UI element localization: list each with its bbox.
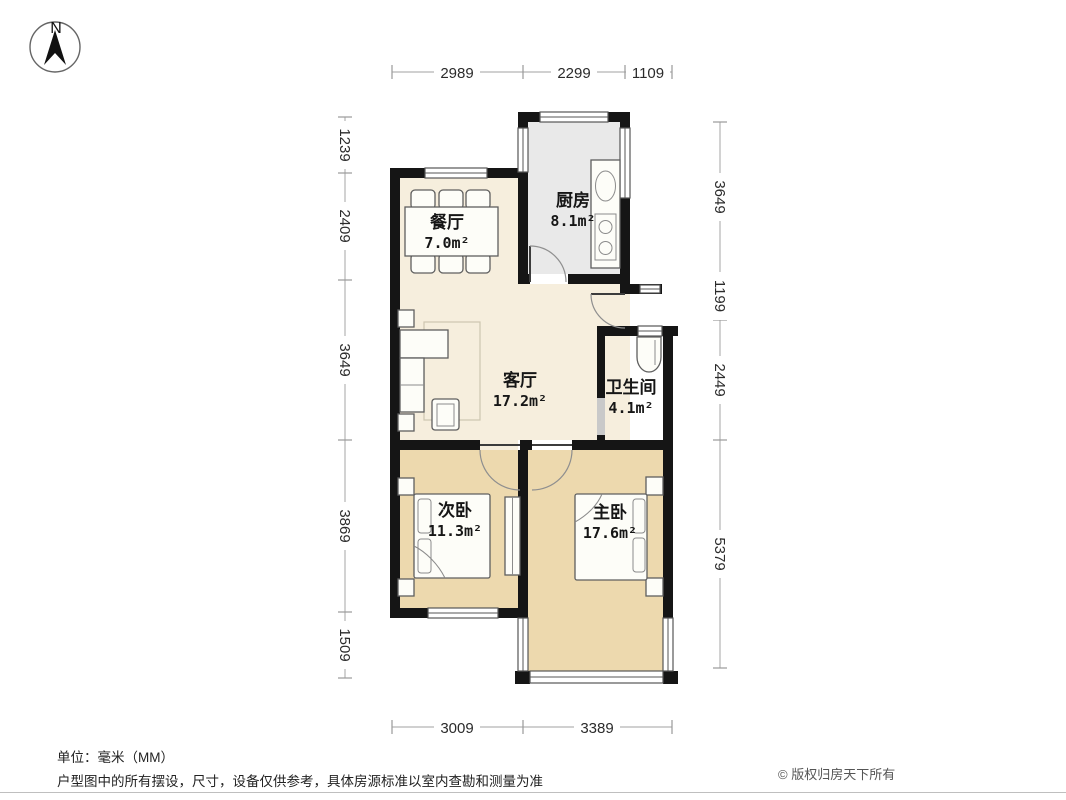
label-bathroom-area: 4.1m² <box>608 399 653 417</box>
nightstand <box>398 579 414 596</box>
dim-right-2: 2449 <box>711 363 728 396</box>
window-kitchen-top <box>540 112 608 122</box>
window-kitchen-left <box>518 128 528 172</box>
dimension-right: 3649 1199 2449 5379 <box>710 122 730 668</box>
window-entry <box>640 285 660 293</box>
side-table <box>398 310 414 327</box>
dim-left-4: 1509 <box>336 628 353 661</box>
dimension-top: 2989 2299 1109 <box>392 62 672 82</box>
window-bay-bottom <box>530 671 663 683</box>
label-bathroom-name: 卫生间 <box>606 377 657 397</box>
dimension-left: 1239 2409 3649 3869 1509 <box>335 117 355 678</box>
unit-note: 单位：毫米（MM） <box>57 746 174 766</box>
nightstand <box>646 578 663 596</box>
door-bathroom-pocket <box>597 398 605 435</box>
compass: N <box>30 20 80 72</box>
bottom-divider <box>0 792 1066 793</box>
window-bedroom2-bottom <box>428 608 498 618</box>
dim-bottom-0: 3009 <box>440 720 473 737</box>
label-dining-area: 7.0m² <box>424 234 469 252</box>
floorplan-canvas: N 2989 2299 1109 1239 2409 3649 3869 150… <box>0 0 1066 800</box>
label-bedroom1-name: 主卧 <box>593 502 627 522</box>
dim-left-0: 1239 <box>336 128 353 161</box>
nightstand <box>398 478 414 495</box>
label-kitchen-area: 8.1m² <box>550 212 595 230</box>
label-bedroom2-area: 11.3m² <box>428 522 482 540</box>
dim-top-2: 1109 <box>632 65 664 82</box>
dim-right-3: 5379 <box>711 537 728 570</box>
label-living-area: 17.2m² <box>493 392 547 410</box>
disclaimer: 户型图中的所有摆设，尺寸，设备仅供参考，具体房源标准以室内查勘和测量为准 <box>57 770 543 790</box>
window-bay-right <box>663 618 673 671</box>
window-dining-top <box>425 168 487 178</box>
toilet-icon <box>637 337 661 372</box>
dim-left-3: 3869 <box>336 509 353 542</box>
dim-top-1: 2299 <box>557 65 590 82</box>
side-table <box>398 414 414 431</box>
nightstand <box>646 477 663 495</box>
copyright: © 版权归房天下所有 <box>778 764 895 783</box>
dim-right-1: 1199 <box>711 280 728 312</box>
dimension-bottom: 3009 3389 <box>392 717 672 737</box>
dim-left-2: 3649 <box>336 343 353 376</box>
dim-right-0: 3649 <box>711 180 728 213</box>
window-bay-left <box>518 618 528 671</box>
label-kitchen-name: 厨房 <box>556 190 590 210</box>
window-kitchen-right <box>620 128 630 198</box>
dim-left-1: 2409 <box>336 209 353 242</box>
dim-top-0: 2989 <box>440 65 473 82</box>
floorplan-page: N 2989 2299 1109 1239 2409 3649 3869 150… <box>0 0 1066 800</box>
label-living-name: 客厅 <box>502 370 537 390</box>
dim-bottom-1: 3389 <box>580 720 613 737</box>
label-bedroom2-name: 次卧 <box>438 500 472 520</box>
window-bathroom-top <box>638 326 662 336</box>
label-bedroom1-area: 17.6m² <box>583 524 637 542</box>
sofa-top <box>400 330 448 358</box>
label-dining-name: 餐厅 <box>430 212 464 232</box>
